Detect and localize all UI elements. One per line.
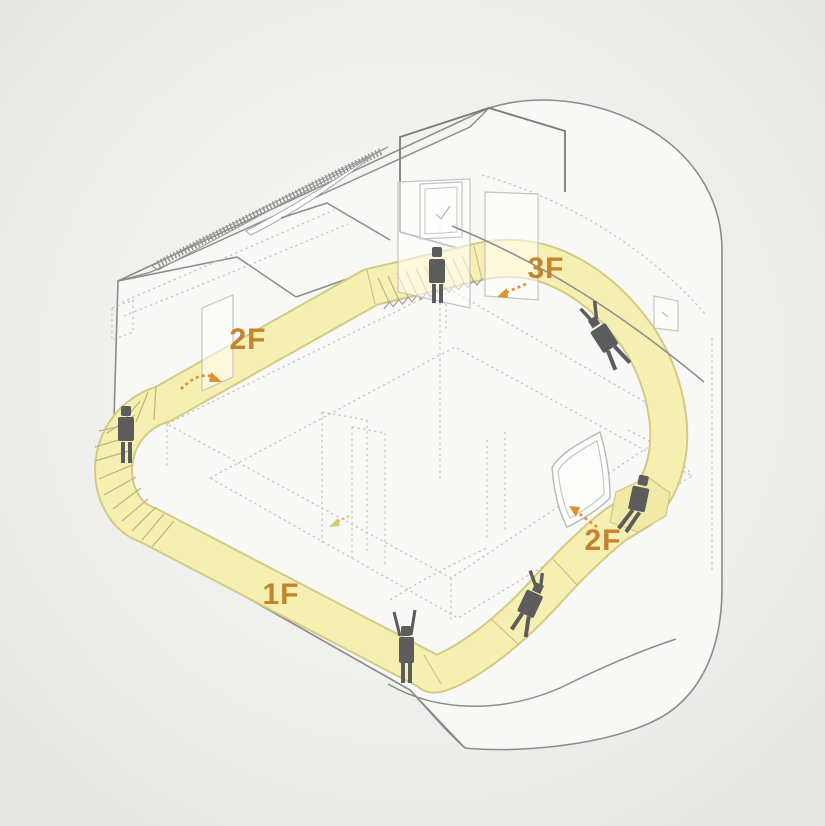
picture-frame-icon xyxy=(420,182,462,239)
label-3f-top: 3F xyxy=(527,252,564,285)
label-2f-right: 2F xyxy=(584,524,621,557)
label-2f-left: 2F xyxy=(229,323,266,356)
right-wall-door-icon xyxy=(654,296,678,331)
door-frame-2f-left xyxy=(202,295,233,391)
isometric-house-circulation-diagram: 2F 3F 2F 1F xyxy=(0,0,825,826)
diagram-canvas: 2F 3F 2F 1F xyxy=(0,0,825,826)
label-1f-bottom: 1F xyxy=(262,578,299,611)
